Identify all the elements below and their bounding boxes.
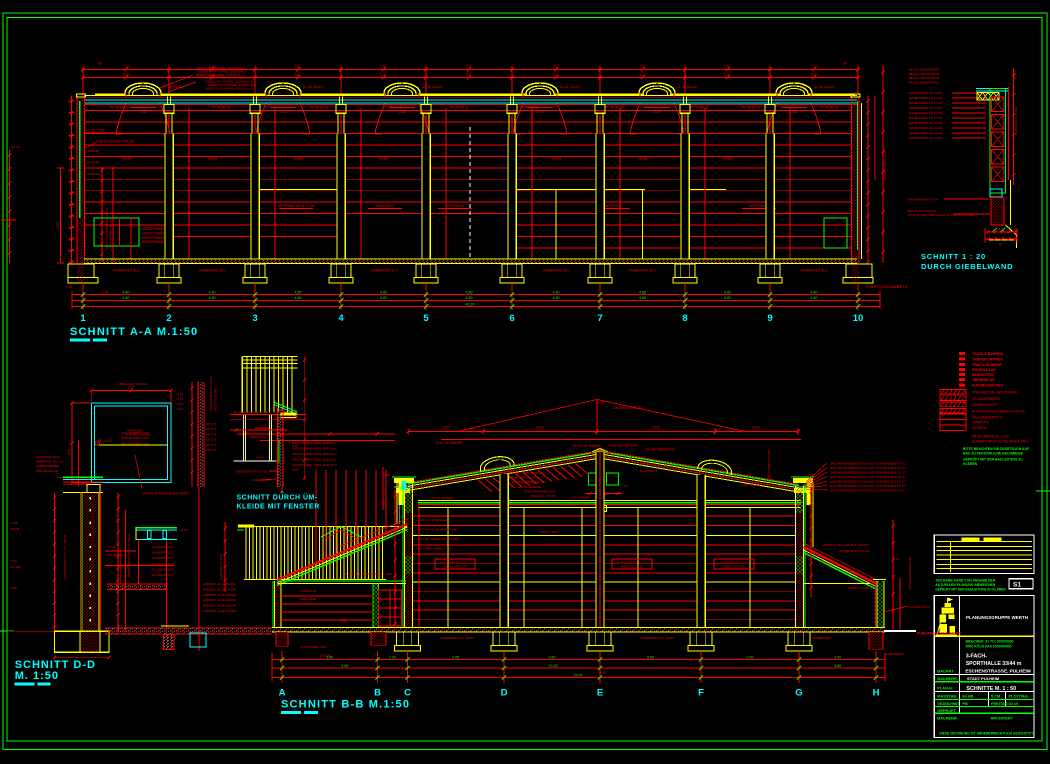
svg-text:PC 08 (ALU): PC 08 (ALU) xyxy=(310,106,328,110)
svg-text:+3.01: +3.01 xyxy=(176,407,184,411)
svg-text:+9.60 OK FIRST/PF: +9.60 OK FIRST/PF xyxy=(608,444,638,448)
svg-text:△ +7.05 OK BINDER: △ +7.05 OK BINDER xyxy=(425,496,454,500)
svg-text:DÄMMSCHICHT: DÄMMSCHICHT xyxy=(972,403,997,407)
svg-text:7.50: 7.50 xyxy=(123,65,130,69)
svg-text:KS 17.5: KS 17.5 xyxy=(206,432,217,436)
svg-text:WDVS 100 N.06: WDVS 100 N.06 xyxy=(621,565,643,569)
svg-text:+2.26: +2.26 xyxy=(10,521,18,525)
svg-text:DURCH GIEBELWAND: DURCH GIEBELWAND xyxy=(921,262,1013,271)
svg-text:PC 08 (ALU): PC 08 (ALU) xyxy=(212,106,230,110)
svg-text:PLOT/TAG: PLOT/TAG xyxy=(1009,694,1028,699)
svg-text:MAUERWERK KS 24 DIN: MAUERWERK KS 24 DIN xyxy=(909,111,943,115)
svg-text:2.00: 2.00 xyxy=(67,449,71,455)
svg-text:STADT PULHEIM: STADT PULHEIM xyxy=(967,676,1000,681)
svg-text:SPIEGEL: SPIEGEL xyxy=(87,149,100,153)
svg-text:TEILNAME KANN VON ANGABE DER: TEILNAME KANN VON ANGABE DER xyxy=(935,578,996,582)
svg-text:4.80: 4.80 xyxy=(553,296,560,300)
svg-text:9.625: 9.625 xyxy=(536,426,544,430)
svg-text:3: 3 xyxy=(252,313,257,324)
svg-text:1.06: 1.06 xyxy=(292,468,298,472)
svg-text:DACHAUFBAU N.06: DACHAUFBAU N.06 xyxy=(121,431,149,435)
svg-text:10: 10 xyxy=(853,313,864,324)
svg-text:MAUERWERK KS 24: MAUERWERK KS 24 xyxy=(908,198,938,202)
svg-text:9.625: 9.625 xyxy=(652,426,660,430)
svg-text:CL-3K (GLAS): CL-3K (GLAS) xyxy=(163,85,184,89)
svg-text:9.60: 9.60 xyxy=(549,655,556,659)
svg-text:MAUERWERK KS 24 DIN: MAUERWERK KS 24 DIN xyxy=(909,121,943,125)
svg-text:+5.425: +5.425 xyxy=(723,157,733,161)
svg-text:3.60: 3.60 xyxy=(811,73,818,77)
svg-text:3.60: 3.60 xyxy=(466,73,473,77)
svg-text:SCHNITT A-A M.1:50: SCHNITT A-A M.1:50 xyxy=(70,326,198,338)
svg-text:SAUBERKEIT 5cm: SAUBERKEIT 5cm xyxy=(112,269,139,273)
svg-text:40: 40 xyxy=(624,484,628,488)
svg-text:4.80: 4.80 xyxy=(724,296,731,300)
svg-text:DACHKIES 16/32: DACHKIES 16/32 xyxy=(36,455,61,459)
svg-text:7.50: 7.50 xyxy=(639,65,646,69)
svg-text:BAUART: BAUART xyxy=(937,668,954,673)
svg-text:BESCHICHTUNG: BESCHICHTUNG xyxy=(214,387,218,411)
svg-text:DACHRANDABDECKUNG AUS TITANZIN: DACHRANDABDECKUNG AUS TITANZINKBLECH 0.7 xyxy=(830,466,906,470)
svg-text:3.60: 3.60 xyxy=(326,655,333,659)
svg-text:HINWEIS: ALLE MASSE: HINWEIS: ALLE MASSE xyxy=(203,604,236,608)
svg-text:3.00: 3.00 xyxy=(834,655,841,659)
svg-text:4.80: 4.80 xyxy=(724,290,731,294)
svg-text:UNTERZUG: UNTERZUG xyxy=(446,204,465,208)
svg-text:3.60: 3.60 xyxy=(295,73,302,77)
svg-text:MAUERWERK KS 24 DIN: MAUERWERK KS 24 DIN xyxy=(909,116,943,120)
svg-text:DACHAUFBAU KIES 16/32 5cm: DACHAUFBAU KIES 16/32 5cm xyxy=(292,458,337,462)
svg-text:14.35: 14.35 xyxy=(121,566,129,570)
svg-text:+7.05: +7.05 xyxy=(383,473,391,477)
svg-text:SPORTBELAG N.PLAN: SPORTBELAG N.PLAN xyxy=(278,204,315,208)
svg-text:AUSSENWAND KS+WDVS: AUSSENWAND KS+WDVS xyxy=(209,375,213,411)
svg-text:DACHRANDABDECKUNG AUS TITANZIN: DACHRANDABDECKUNG AUS TITANZINKBLECH 0.7 xyxy=(830,462,906,466)
svg-text:CL-3K (GLAS): CL-3K (GLAS) xyxy=(303,85,324,89)
svg-text:B-SCHALE BEKIESUNG ST. KIES: B-SCHALE BEKIESUNG ST. KIES xyxy=(345,572,393,576)
svg-text:GK-DECKE 12.5: GK-DECKE 12.5 xyxy=(152,573,174,577)
svg-text:11.45: 11.45 xyxy=(12,145,20,149)
svg-text:H: H xyxy=(873,688,880,699)
svg-text:60: 60 xyxy=(843,62,847,66)
svg-text:FUNDAMENT 80 N.STATIK: FUNDAMENT 80 N.STATIK xyxy=(917,632,962,636)
svg-text:HINWEIS: ALLE MASSE: HINWEIS: ALLE MASSE xyxy=(203,582,236,586)
svg-text:UMKLEIDE H=2.50: UMKLEIDE H=2.50 xyxy=(219,554,223,580)
svg-text:9.65: 9.65 xyxy=(747,655,754,659)
svg-text:PB: PB xyxy=(962,701,968,706)
svg-text:ATTIKAVERBLECHUNG: ATTIKAVERBLECHUNG xyxy=(767,448,771,482)
svg-text:40: 40 xyxy=(896,557,900,561)
svg-text:2-SCHALIG: 2-SCHALIG xyxy=(300,589,317,593)
svg-text:SCHNITT B-B M.1:50: SCHNITT B-B M.1:50 xyxy=(281,699,410,711)
svg-text:DACHAUFBAU KIES 16/32 5cm: DACHAUFBAU KIES 16/32 5cm xyxy=(292,441,337,445)
svg-text:PB 05 OBERFLÄ 1.5 cm: PB 05 OBERFLÄ 1.5 cm xyxy=(972,435,1009,439)
svg-text:4.80: 4.80 xyxy=(295,290,302,294)
svg-text:DACHHAUT: DACHHAUT xyxy=(640,469,657,473)
svg-text:△ OK BINDER: △ OK BINDER xyxy=(570,496,590,500)
svg-text:BAUHERR: BAUHERR xyxy=(937,676,957,681)
svg-text:7.50: 7.50 xyxy=(811,65,818,69)
svg-text:9.625: 9.625 xyxy=(442,426,450,430)
svg-text:DACHRANDABDECKUNG AUS TITANZIN: DACHRANDABDECKUNG AUS TITANZINKBLECH 0.7 xyxy=(830,489,906,493)
svg-text:1.20: 1.20 xyxy=(102,290,109,294)
svg-text:+2.05 PRALLWAND N.06: +2.05 PRALLWAND N.06 xyxy=(416,547,451,551)
svg-text:BODENPLATTE D=20: BODENPLATTE D=20 xyxy=(237,470,267,474)
svg-text:▪: ▪ xyxy=(951,435,952,438)
svg-text:3.60: 3.60 xyxy=(724,73,731,77)
svg-text:-0.95: -0.95 xyxy=(65,285,72,289)
svg-text:7: 7 xyxy=(597,313,602,324)
svg-text:WÄRMEDÄMMUNG 120: WÄRMEDÄMMUNG 120 xyxy=(512,480,546,484)
svg-text:OBERLICHT KUPPEL: OBERLICHT KUPPEL xyxy=(118,382,148,386)
svg-text:HINWEIS: ALLE MASSE: HINWEIS: ALLE MASSE xyxy=(203,593,236,597)
svg-text:ARCHITEKT: ARCHITEKT xyxy=(991,716,1014,721)
svg-text:+8.475 UK BINDER: +8.475 UK BINDER xyxy=(572,444,602,448)
svg-text:STREIFENFUND. 50/80: STREIFENFUND. 50/80 xyxy=(640,636,674,640)
svg-text:FUSSBODEN NEU: FUSSBODEN NEU xyxy=(972,383,1004,387)
svg-text:7.50: 7.50 xyxy=(380,65,387,69)
svg-text:KALKZEMENTPUTZ: KALKZEMENTPUTZ xyxy=(972,416,1003,420)
svg-text:CL-3K (GLAS): CL-3K (GLAS) xyxy=(814,85,835,89)
svg-text:KS 17.5: KS 17.5 xyxy=(206,443,217,447)
svg-text:GEPRÜFT MIT DER BAULEITUNG ZU: GEPRÜFT MIT DER BAULEITUNG ZU xyxy=(963,457,1023,462)
svg-text:28.05: 28.05 xyxy=(574,673,583,677)
svg-text:TRAFO-SCHIENE: TRAFO-SCHIENE xyxy=(972,363,1002,367)
svg-text:MAUERWERK KS 24 DIN: MAUERWERK KS 24 DIN xyxy=(909,91,943,95)
svg-text:8: 8 xyxy=(682,313,687,324)
svg-text:GEPRÜFT MIT DER BAULEITUNG ZU: GEPRÜFT MIT DER BAULEITUNG ZU KLÄREN xyxy=(935,586,1006,591)
svg-text:KS 17.5: KS 17.5 xyxy=(206,427,217,431)
svg-text:4.80: 4.80 xyxy=(466,290,473,294)
svg-text:BRACHER: 31 TO: 0000/0000: BRACHER: 31 TO: 0000/0000 xyxy=(966,639,1014,643)
svg-text:G: G xyxy=(795,688,802,699)
svg-text:SAUBERKEIT 5cm: SAUBERKEIT 5cm xyxy=(542,269,569,273)
svg-text:AUSSENPUTZ 1-LAG.: AUSSENPUTZ 1-LAG. xyxy=(839,549,871,553)
svg-text:4.80: 4.80 xyxy=(380,290,387,294)
svg-text:+5.425: +5.425 xyxy=(207,157,217,161)
svg-text:+7.05 ü OKF: +7.05 ü OKF xyxy=(86,129,105,133)
svg-text:KLÄREN: KLÄREN xyxy=(963,462,978,466)
svg-text:MAUERWERK KS 24 DIN: MAUERWERK KS 24 DIN xyxy=(909,126,943,130)
svg-text:BAU ZU PERSÖNLICHE NACHWEISE: BAU ZU PERSÖNLICHE NACHWEISE xyxy=(963,451,1024,456)
svg-text:3.85: 3.85 xyxy=(834,664,841,668)
svg-text:SCHNITT 1 : 20: SCHNITT 1 : 20 xyxy=(921,252,986,261)
svg-text:1: 1 xyxy=(80,313,86,324)
svg-text:GEZEICHNET: GEZEICHNET xyxy=(937,702,960,706)
svg-text:18032 AUFBAU 90 mm: 18032 AUFBAU 90 mm xyxy=(109,218,113,250)
svg-text:E: E xyxy=(597,688,603,699)
svg-text:DAMPFSPERRE: DAMPFSPERRE xyxy=(518,485,541,489)
svg-text:KS 17.5: KS 17.5 xyxy=(206,438,217,442)
svg-text:+5.425: +5.425 xyxy=(121,157,131,161)
svg-text:4.80: 4.80 xyxy=(209,290,216,294)
svg-text:SAUBERKEIT 5cm: SAUBERKEIT 5cm xyxy=(800,269,827,273)
svg-text:7.50: 7.50 xyxy=(466,65,473,69)
svg-text:3.60: 3.60 xyxy=(639,73,646,77)
svg-text:-0.30: -0.30 xyxy=(10,559,17,563)
svg-text:PC 08 (ALU): PC 08 (ALU) xyxy=(384,106,402,110)
svg-text:▪: ▪ xyxy=(951,440,952,443)
svg-text:GK-DECKE 12.5: GK-DECKE 12.5 xyxy=(152,551,174,555)
svg-text:+3.01: +3.01 xyxy=(176,392,184,396)
svg-text:CL-3K (GLAS): CL-3K (GLAS) xyxy=(422,85,443,89)
svg-text:ESTRICH: ESTRICH xyxy=(972,426,987,430)
svg-text:OK GEL: OK GEL xyxy=(10,565,22,569)
svg-text:7.50: 7.50 xyxy=(295,65,302,69)
svg-text:04 10: 04 10 xyxy=(1009,701,1019,706)
svg-text:UNTERZUG: UNTERZUG xyxy=(376,204,395,208)
svg-text:+4.05 (+6 OK SPIEGEL): +4.05 (+6 OK SPIEGEL) xyxy=(416,518,450,522)
svg-text:4.80: 4.80 xyxy=(295,296,302,300)
svg-text:60: 60 xyxy=(98,62,102,66)
svg-text:+0.00: +0.00 xyxy=(256,455,264,459)
svg-text:OBERLICHT KUPPEL 100/200 ALU: OBERLICHT KUPPEL 100/200 ALU xyxy=(205,86,253,90)
svg-text:KS 17.5: KS 17.5 xyxy=(206,448,217,452)
svg-text:DACHAUFBAU N.06: DACHAUFBAU N.06 xyxy=(121,441,149,445)
svg-text:19.25: 19.25 xyxy=(549,664,558,668)
svg-text:DACHAUFBAU KIES 16/32 5cm: DACHAUFBAU KIES 16/32 5cm xyxy=(292,452,337,456)
svg-text:+5.425: +5.425 xyxy=(293,157,303,161)
svg-text:HALLE 45x27: HALLE 45x27 xyxy=(540,530,560,534)
svg-text:4.80: 4.80 xyxy=(123,296,130,300)
svg-text:DIESE ZEICHNUNG IST URHEBERREC: DIESE ZEICHNUNG IST URHEBERRECHTLICH GES… xyxy=(939,731,1033,735)
svg-text:BAUHERR: BAUHERR xyxy=(937,716,957,721)
svg-text:DACHRANDABDECKUNG AUS TITANZIN: DACHRANDABDECKUNG AUS TITANZINKBLECH 0.7 xyxy=(830,480,906,484)
svg-text:4.95: 4.95 xyxy=(341,664,348,668)
svg-text:DACHRANDABDECKUNG AUS TITANZIN: DACHRANDABDECKUNG AUS TITANZINKBLECH 0.7 xyxy=(830,484,906,488)
svg-text:5.CM: 5.CM xyxy=(991,694,1000,699)
svg-text:36: 36 xyxy=(998,243,1002,247)
svg-text:2.00: 2.00 xyxy=(128,386,134,390)
svg-text:AUSGLEICHSCH ÜBER KS (N+K): AUSGLEICHSCH ÜBER KS (N+K) xyxy=(972,409,1024,413)
svg-text:+2.26: +2.26 xyxy=(108,545,116,549)
svg-text:+2.60 MIT OBERLICHT-BLEND: +2.60 MIT OBERLICHT-BLEND xyxy=(416,537,460,541)
svg-text:SPIEGEL: SPIEGEL xyxy=(87,161,100,165)
svg-text:+5.425: +5.425 xyxy=(638,157,648,161)
svg-text:SCHNITT DURCH ÜM-: SCHNITT DURCH ÜM- xyxy=(237,493,318,502)
svg-text:SPIEGEL: SPIEGEL xyxy=(87,172,100,176)
svg-text:DACHRANDABDECKUNG AUS TITANZIN: DACHRANDABDECKUNG AUS TITANZINKBLECH 0.7 xyxy=(830,475,906,479)
svg-text:+3.01: +3.01 xyxy=(176,397,184,401)
svg-text:WDVS 100 N.06: WDVS 100 N.06 xyxy=(723,565,745,569)
svg-text:D: D xyxy=(501,688,508,699)
svg-text:4.80: 4.80 xyxy=(811,296,818,300)
svg-text:OBERFLÄCHEN BEH. N. 18032: OBERFLÄCHEN BEH. N. 18032 xyxy=(127,533,131,577)
svg-text:MAUERWERK KS 24 DIN: MAUERWERK KS 24 DIN xyxy=(909,106,943,110)
svg-text:ATTIKA: ATTIKA xyxy=(1013,70,1017,80)
svg-text:DAMPFSPERRE: DAMPFSPERRE xyxy=(36,464,60,468)
svg-text:3.60: 3.60 xyxy=(553,73,560,77)
svg-text:DACHAUFBAU KIES 16/32 5cm: DACHAUFBAU KIES 16/32 5cm xyxy=(292,447,337,451)
svg-text:MAUERWERK KS 24 DIN: MAUERWERK KS 24 DIN xyxy=(909,136,943,140)
svg-text:EINBAUTEN:: EINBAUTEN: xyxy=(972,373,994,377)
svg-text:GK-DECKE 12.5: GK-DECKE 12.5 xyxy=(152,556,174,560)
svg-text:MASSTAB: MASSTAB xyxy=(937,694,956,699)
svg-text:BESCHICH-30-SPLISS: BESCHICH-30-SPLISS xyxy=(99,139,135,143)
svg-text:KS-MAUERWERK: KS-MAUERWERK xyxy=(972,397,1001,401)
svg-text:+2.50: +2.50 xyxy=(180,528,188,532)
svg-text:SAUBERKEIT 5cm: SAUBERKEIT 5cm xyxy=(628,269,655,273)
svg-text:AUSSENWAND KS 17.5 + WDVS: AUSSENWAND KS 17.5 + WDVS xyxy=(63,535,67,580)
svg-text:OK FENSTERBANK +2.26: OK FENSTERBANK +2.26 xyxy=(233,410,268,414)
svg-text:4.80: 4.80 xyxy=(553,290,560,294)
svg-text:GERÄTERAUM: GERÄTERAUM xyxy=(142,227,165,231)
svg-text:19.25: 19.25 xyxy=(596,401,605,405)
svg-text:GERÄTERAUM: GERÄTERAUM xyxy=(142,236,165,240)
svg-text:GIEBELWAND 3.MW: GIEBELWAND 3.MW xyxy=(1014,106,1018,135)
svg-text:HINWEIS: ALLE MASSE: HINWEIS: ALLE MASSE xyxy=(203,598,236,602)
svg-text:HINWEIS: ALLE MASSE: HINWEIS: ALLE MASSE xyxy=(203,609,236,613)
svg-text:FENSTER: FENSTER xyxy=(250,436,266,440)
svg-text:GESAMTHÖHE +8.10: GESAMTHÖHE +8.10 xyxy=(883,150,887,180)
svg-text:+7.05: +7.05 xyxy=(382,500,386,508)
svg-text:SCHNITTE M. 1 : 50: SCHNITTE M. 1 : 50 xyxy=(966,686,1016,692)
svg-text:ABDICHTUNG 2-LAGIG: ABDICHTUNG 2-LAGIG xyxy=(506,476,539,480)
svg-text:4.80: 4.80 xyxy=(380,296,387,300)
svg-text:GEPRÜFT: GEPRÜFT xyxy=(937,708,956,713)
svg-text:PC 08 (ALU): PC 08 (ALU) xyxy=(820,106,838,110)
svg-text:GERÄTERAUM: GERÄTERAUM xyxy=(142,240,165,244)
svg-text:43.20: 43.20 xyxy=(466,302,475,306)
svg-text:PLAN-N.: PLAN-N. xyxy=(937,685,953,690)
svg-text:TRANSPORTWEG: TRANSPORTWEG xyxy=(972,358,1003,362)
svg-text:M. 1:50: M. 1:50 xyxy=(15,670,59,682)
svg-text:+7.05 TRAUFE: +7.05 TRAUFE xyxy=(740,483,761,487)
svg-text:MAUERWERK KS 24 DIN: MAUERWERK KS 24 DIN xyxy=(909,131,943,135)
svg-text:PC 08 (ALU): PC 08 (ALU) xyxy=(742,106,760,110)
svg-text:3.60: 3.60 xyxy=(123,73,130,77)
svg-text:+5.425: +5.425 xyxy=(379,157,389,161)
svg-text:MAUERWERK KS 24 DIN: MAUERWERK KS 24 DIN xyxy=(909,101,943,105)
svg-text:BINDER N. STATIK: BINDER N. STATIK xyxy=(530,494,556,498)
svg-text:5: 5 xyxy=(423,313,429,324)
svg-text:CL-3K (GLAS): CL-3K (GLAS) xyxy=(560,85,581,89)
svg-text:F: F xyxy=(698,688,704,699)
svg-text:4.80: 4.80 xyxy=(639,290,646,294)
svg-text:2.26: 2.26 xyxy=(292,444,298,448)
svg-text:UNTERZUG: UNTERZUG xyxy=(604,204,623,208)
svg-text:+2.00: +2.00 xyxy=(56,222,60,230)
svg-text:+1.26: +1.26 xyxy=(259,424,267,428)
svg-text:+3.05 (+6 OK SCHIENE 10/8): +3.05 (+6 OK SCHIENE 10/8) xyxy=(416,528,457,532)
svg-text:4.80: 4.80 xyxy=(466,296,473,300)
svg-text:PLANUNGSGRUPPE WERTH: PLANUNGSGRUPPE WERTH xyxy=(966,615,1028,620)
svg-text:WDVS 100 N.06: WDVS 100 N.06 xyxy=(444,565,466,569)
svg-text:UMKLEIDE: UMKLEIDE xyxy=(300,597,316,601)
svg-text:SAUBERKEIT 5cm: SAUBERKEIT 5cm xyxy=(370,269,397,273)
svg-text:DACHAUFBAU N.06: DACHAUFBAU N.06 xyxy=(121,436,149,440)
svg-text:ABDECKUNG (SIEHE 2. PUNKT): ABDECKUNG (SIEHE 2. PUNKT) xyxy=(823,543,870,547)
svg-text:GK-DECKE 12.5: GK-DECKE 12.5 xyxy=(152,567,174,571)
svg-text:SAUBERKEIT: SAUBERKEIT xyxy=(812,636,832,640)
svg-text:5% DACHNEIGUNG: 5% DACHNEIGUNG xyxy=(645,448,676,452)
svg-text:9.625: 9.625 xyxy=(752,426,760,430)
svg-text:ESCHENSTRASSE, PULHEIM: ESCHENSTRASSE, PULHEIM xyxy=(965,669,1030,674)
svg-text:7.50: 7.50 xyxy=(553,65,560,69)
svg-text:KLEIDE MIT FENSTER: KLEIDE MIT FENSTER xyxy=(237,504,320,511)
svg-text:HINWEIS: ALLE MASSE: HINWEIS: ALLE MASSE xyxy=(203,587,236,591)
svg-text:MAUERWERK KS 24 DIN: MAUERWERK KS 24 DIN xyxy=(909,96,943,100)
svg-text:▸ 2: ▸ 2 xyxy=(897,285,902,289)
svg-text:4.80: 4.80 xyxy=(811,290,818,294)
svg-text:GERÄTERAUM: GERÄTERAUM xyxy=(142,231,165,235)
svg-text:OK FB: OK FB xyxy=(10,527,19,531)
svg-text:7.50: 7.50 xyxy=(724,65,731,69)
svg-text:STAHLBETON / BESTEHEND: STAHLBETON / BESTEHEND xyxy=(972,391,1018,395)
svg-text:STAHLTRAPEZBLECH: STAHLTRAPEZBLECH xyxy=(524,489,555,493)
svg-text:STREIFENFUND. 50/80: STREIFENFUND. 50/80 xyxy=(440,636,474,640)
svg-text:DÄMMUNG 120 mm: DÄMMUNG 120 mm xyxy=(36,460,65,464)
svg-text:SAUBERKEIT: SAUBERKEIT xyxy=(251,478,270,482)
svg-text:4.80: 4.80 xyxy=(639,296,646,300)
svg-text:KÜHLBODEN 31/8: KÜHLBODEN 31/8 xyxy=(300,645,326,649)
svg-text:DECKE IM ANSCHLUSS VERST.: DECKE IM ANSCHLUSS VERST. xyxy=(142,492,190,496)
svg-text:9: 9 xyxy=(767,313,772,324)
svg-text:BELAG UND ESTRICH: BELAG UND ESTRICH xyxy=(909,80,939,84)
svg-text:-0.80: -0.80 xyxy=(10,586,17,590)
svg-text:DACHAUFBAU KIES 16/32 5cm: DACHAUFBAU KIES 16/32 5cm xyxy=(292,463,337,467)
svg-text:6: 6 xyxy=(509,313,514,324)
svg-text:PC 08 (ALU): PC 08 (ALU) xyxy=(450,106,468,110)
svg-text:4: 4 xyxy=(338,313,344,324)
svg-text:BODEN-KLAP: BODEN-KLAP xyxy=(972,368,997,372)
svg-text:GK-DECKE 12.5: GK-DECKE 12.5 xyxy=(152,545,174,549)
svg-text:UKB: UKB xyxy=(340,619,346,623)
svg-text:3-FACH-: 3-FACH- xyxy=(966,654,987,660)
svg-text:BITTE BEACHTEN SIE ZUSÄTZLICH: BITTE BEACHTEN SIE ZUSÄTZLICH AUF xyxy=(963,447,1029,451)
svg-text:9.65: 9.65 xyxy=(452,655,459,659)
svg-text:5000 KÖLN FAX 0000/00000: 5000 KÖLN FAX 0000/00000 xyxy=(966,644,1012,648)
svg-text:+5.425: +5.425 xyxy=(551,157,561,161)
svg-text:PC 08 (ALU): PC 08 (ALU) xyxy=(110,106,128,110)
svg-text:ø 150: ø 150 xyxy=(104,439,112,443)
svg-text:GIPSPUTZ: GIPSPUTZ xyxy=(972,421,989,425)
svg-text:24 5: 24 5 xyxy=(997,227,1003,231)
svg-text:AKTUELLEN PLANUNG ABWEICHEN: AKTUELLEN PLANUNG ABWEICHEN xyxy=(935,583,996,587)
svg-text:WÄRMEDÄMMUNG 100: WÄRMEDÄMMUNG 100 xyxy=(908,556,912,590)
svg-text:DACHRANDABDECKUNG AUS TITANZIN: DACHRANDABDECKUNG AUS TITANZINKBLECH 0.7 xyxy=(830,471,906,475)
svg-text:AUSSENPUTZ: AUSSENPUTZ xyxy=(909,605,930,609)
svg-text:STB-DECKE 20: STB-DECKE 20 xyxy=(36,469,58,473)
svg-text:BESCHICHTUNG 2x: BESCHICHTUNG 2x xyxy=(908,209,937,213)
svg-text:4.80: 4.80 xyxy=(123,290,130,294)
svg-text:3.60: 3.60 xyxy=(380,73,387,77)
svg-text:+8.10 UK BINDER: +8.10 UK BINDER xyxy=(435,441,463,445)
svg-text:KS 17.5: KS 17.5 xyxy=(206,422,217,426)
svg-text:A: A xyxy=(279,688,286,699)
svg-text:C: C xyxy=(404,688,411,699)
svg-text:ANSICHT 13/8: ANSICHT 13/8 xyxy=(848,586,869,590)
svg-text:UK DECKE: UK DECKE xyxy=(108,553,123,557)
svg-text:FUNDAMENT: FUNDAMENT xyxy=(885,652,905,656)
svg-text:9.60: 9.60 xyxy=(647,655,654,659)
svg-text:TEXTILE BAHNEN: TEXTILE BAHNEN xyxy=(972,352,1004,356)
svg-text:10/8: 10/8 xyxy=(600,671,606,675)
svg-text:4.80: 4.80 xyxy=(209,296,216,300)
svg-text:SAUBERKEIT 5cm: SAUBERKEIT 5cm xyxy=(198,269,225,273)
svg-text:B: B xyxy=(374,688,381,699)
svg-text:FREITAG: FREITAG xyxy=(991,701,1008,706)
svg-text:2: 2 xyxy=(166,313,171,324)
svg-text:CL-3K (GLAS): CL-3K (GLAS) xyxy=(677,85,698,89)
svg-text:64 4/8: 64 4/8 xyxy=(962,694,974,699)
svg-text:SPORTHALLE 33/44 m: SPORTHALLE 33/44 m xyxy=(966,661,1022,667)
svg-text:OBERBELAG: OBERBELAG xyxy=(972,378,995,382)
svg-text:S1: S1 xyxy=(1013,581,1021,588)
svg-text:DACHNEIGUNG 5%: DACHNEIGUNG 5% xyxy=(613,406,643,410)
svg-text:1.20: 1.20 xyxy=(389,655,396,659)
svg-text:+3.01: +3.01 xyxy=(176,402,184,406)
